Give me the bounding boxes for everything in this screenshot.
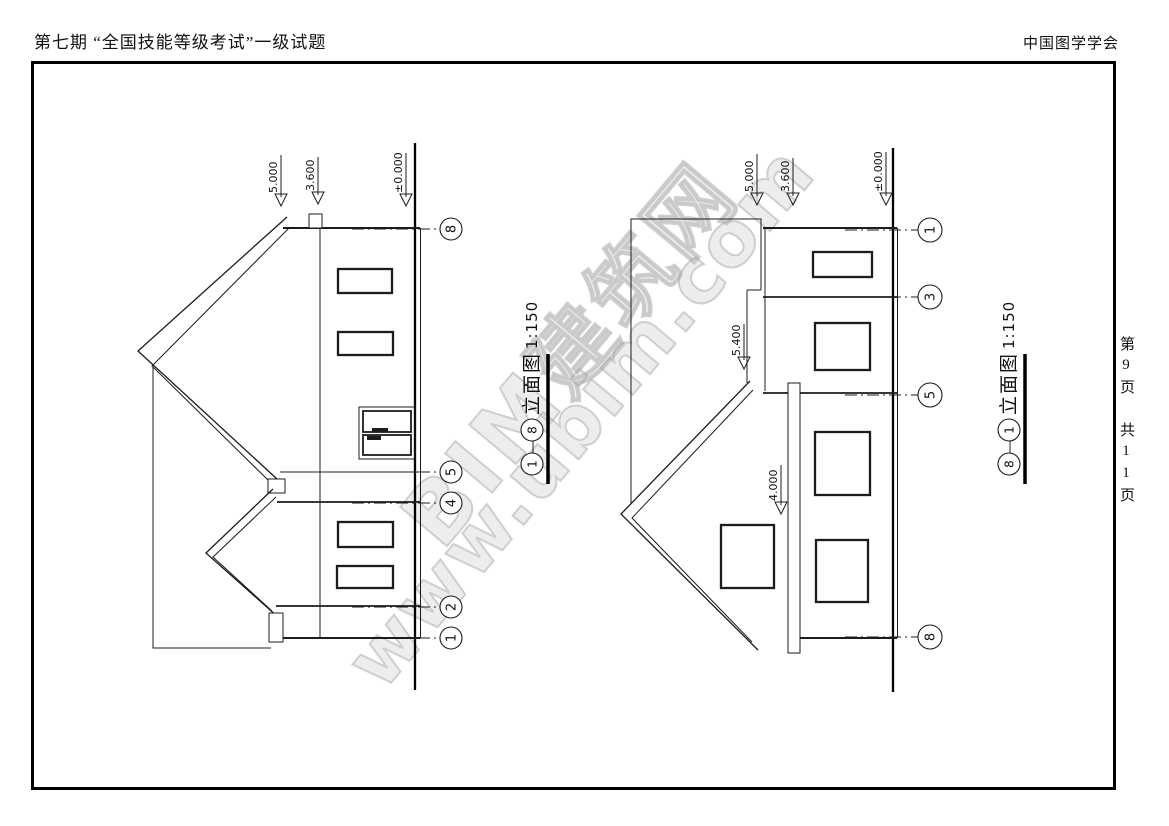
drawing-sheet: 第七期 “全国技能等级考试”一级试题 中国图学学会 第9页 共11页 BIM建筑… [0,0,1169,826]
grid-bubble-number: 1 [445,634,460,642]
elevation-value: 3.600 [779,161,792,193]
elevation-mark: 5.000 [743,154,763,205]
grid-bubble-number: 8 [445,225,460,233]
right-elevation-view: 1 3 5 8 5.000 3.600 [621,148,1025,692]
window [813,252,872,277]
title-bubble-number: 8 [1003,460,1017,468]
window [816,540,868,602]
grid-bubble-number: 5 [924,391,939,399]
window [338,269,392,293]
window [815,323,870,370]
grid-bubble-number: 5 [445,468,460,476]
sash-window [359,407,415,459]
window [815,432,870,495]
background-building [631,219,761,504]
pilaster-strip [788,383,800,653]
elevation-mark: ±0.000 [872,151,892,205]
title-bubble-number: 1 [526,460,540,468]
upper-roof-inner-edge [152,227,290,481]
grid-bubble-group: 8 5 4 2 1 [352,218,462,649]
elevation-value: 5.000 [267,162,280,194]
title-dash: — [1003,441,1018,454]
title-dash: — [526,441,541,454]
elevation-mark: ±0.000 [392,152,412,206]
grid-bubble-number: 4 [445,499,460,507]
title-bubble-number: 1 [1003,426,1017,434]
grid-bubble-number: 3 [924,293,939,301]
view-title-left: 1 — 8 立面图 1:150 [521,301,548,484]
window [338,332,393,355]
window [338,522,393,547]
gable-window [721,525,774,588]
elevation-value: ±0.000 [392,152,405,193]
elevation-value: ±0.000 [872,151,885,192]
sash-handle [367,436,381,440]
roof-inner-edge [632,390,753,642]
lower-eave-box [269,613,283,642]
roof-outer-edge [621,381,758,650]
lower-roof-inner-edge [213,497,276,611]
grid-bubble-number: 1 [924,226,939,234]
elevation-value: 3.600 [304,160,317,192]
sash-window-frame [359,407,415,459]
elevation-mark: 5.000 [267,155,287,206]
elevation-mark: 3.600 [304,157,324,204]
upper-roof-outer-edge [138,217,287,479]
elevation-mark: 4.000 [767,465,787,514]
view-scale: 1:150 [1000,301,1018,349]
view-title-right: 8 — 1 立面图 1:150 [998,301,1025,484]
sash-handle [372,428,388,432]
title-bubble-number: 8 [526,426,540,434]
elevation-mark: 3.600 [779,158,799,205]
elevation-value: 5.400 [730,325,743,357]
elevation-drawings-canvas: 8 5 4 2 1 5.000 [0,0,1169,826]
view-title-text: 立面图 [998,352,1020,415]
view-title-text: 立面图 [521,352,543,415]
window [337,566,393,588]
grid-bubble-number: 2 [445,603,460,611]
left-elevation-view: 8 5 4 2 1 5.000 [138,143,548,690]
chimney [309,214,322,228]
elevation-value: 5.000 [743,161,756,193]
view-scale: 1:150 [523,301,541,349]
elevation-value: 4.000 [767,470,780,502]
grid-bubble-number: 8 [924,633,939,641]
